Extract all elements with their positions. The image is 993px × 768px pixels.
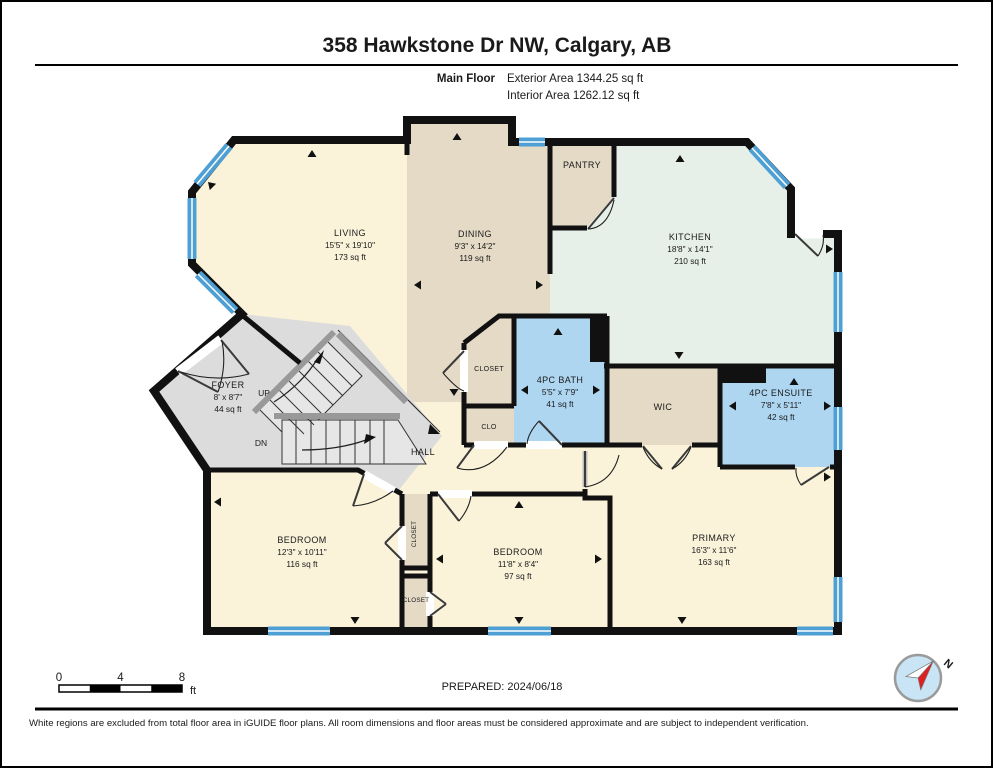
prepared-date: PREPARED: 2024/06/18 [442,681,563,693]
label-stairs-up: UP [258,388,270,398]
label-ensuite-dims: 7'8" x 5'11" [761,400,801,410]
label-bath-name: 4PC BATH [537,375,584,385]
label-living-name: LIVING [334,228,366,238]
label-ensuite-name: 4PC ENSUITE [749,388,812,398]
label-dining-name: DINING [458,229,492,239]
label-kitchen-name: KITCHEN [669,232,711,242]
label-living-dims: 15'5" x 19'10" [325,240,375,250]
label-primary-dims: 16'3" x 11'6" [692,545,737,555]
scale-tick-0: 0 [56,672,62,684]
label-foyer-area: 44 sq ft [214,404,242,414]
label-dining-area: 119 sq ft [459,253,491,263]
floorplan-canvas: 358 Hawkstone Dr NW, Calgary, AB Main Fl… [2,2,991,766]
label-primary-area: 163 sq ft [698,557,731,567]
compass-icon: N [895,654,955,701]
floorplan-page: 358 Hawkstone Dr NW, Calgary, AB Main Fl… [0,0,993,768]
label-living-area: 173 sq ft [334,252,367,262]
label-kitchen-dims: 18'8" x 14'1" [667,244,713,254]
exterior-area: Exterior Area 1344.25 sq ft [507,73,644,85]
label-hall: HALL [411,447,435,457]
scale-bar: 0 4 8 ft [56,672,196,697]
label-bedroom2-name: BEDROOM [493,547,542,557]
interior-area: Interior Area 1262.12 sq ft [507,90,640,102]
label-closet-hall: CLOSET [474,366,504,373]
label-pantry: PANTRY [563,160,601,170]
label-closet-bed2: CLOSET [403,597,429,604]
scale-unit: ft [190,685,196,697]
label-wic: WIC [654,402,673,412]
label-bedroom1-name: BEDROOM [277,535,326,545]
label-primary-name: PRIMARY [692,533,736,543]
scale-tick-8: 8 [179,672,185,684]
label-closet-bed1: CLOSET [411,521,418,547]
floor-label: Main Floor [437,73,496,85]
label-kitchen-area: 210 sq ft [674,256,707,266]
wall-notch-bath [590,316,607,362]
disclaimer-text: White regions are excluded from total fl… [29,718,809,729]
label-bedroom2-area: 97 sq ft [504,571,532,581]
label-foyer-dims: 8' x 8'7" [214,392,243,402]
scale-tick-4: 4 [117,672,124,684]
page-title: 358 Hawkstone Dr NW, Calgary, AB [323,34,672,57]
label-bedroom2-dims: 11'8" x 8'4" [498,559,538,569]
label-bedroom1-area: 116 sq ft [286,559,318,569]
label-stairs-dn: DN [255,438,267,448]
label-clo: CLO [481,424,497,431]
label-bath-area: 41 sq ft [546,399,574,409]
label-bedroom1-dims: 12'3" x 10'11" [277,547,327,557]
wall-notch-ensuite [720,366,766,383]
compass-north-label: N [941,657,955,671]
label-ensuite-area: 42 sq ft [767,412,795,422]
label-bath-dims: 5'5" x 7'9" [542,387,578,397]
label-dining-dims: 9'3" x 14'2" [455,241,496,251]
label-foyer-name: FOYER [211,380,244,390]
